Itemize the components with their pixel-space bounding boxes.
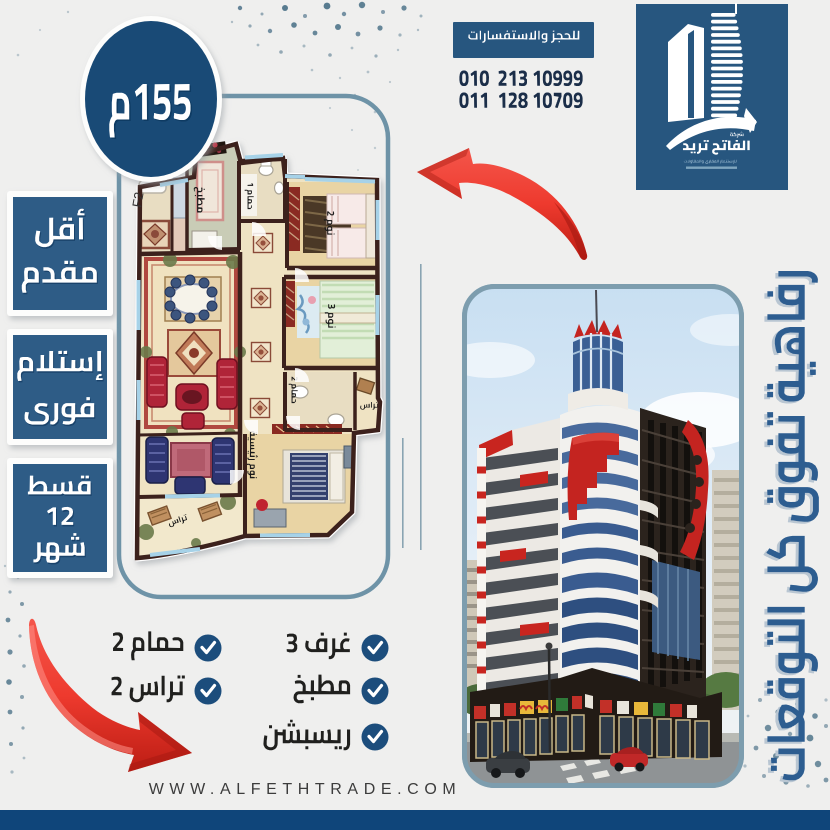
- svg-text:WWW.ALFETHTRADE.COM: WWW.ALFETHTRADE.COM: [149, 781, 462, 798]
- svg-text:F2: F2: [129, 191, 146, 209]
